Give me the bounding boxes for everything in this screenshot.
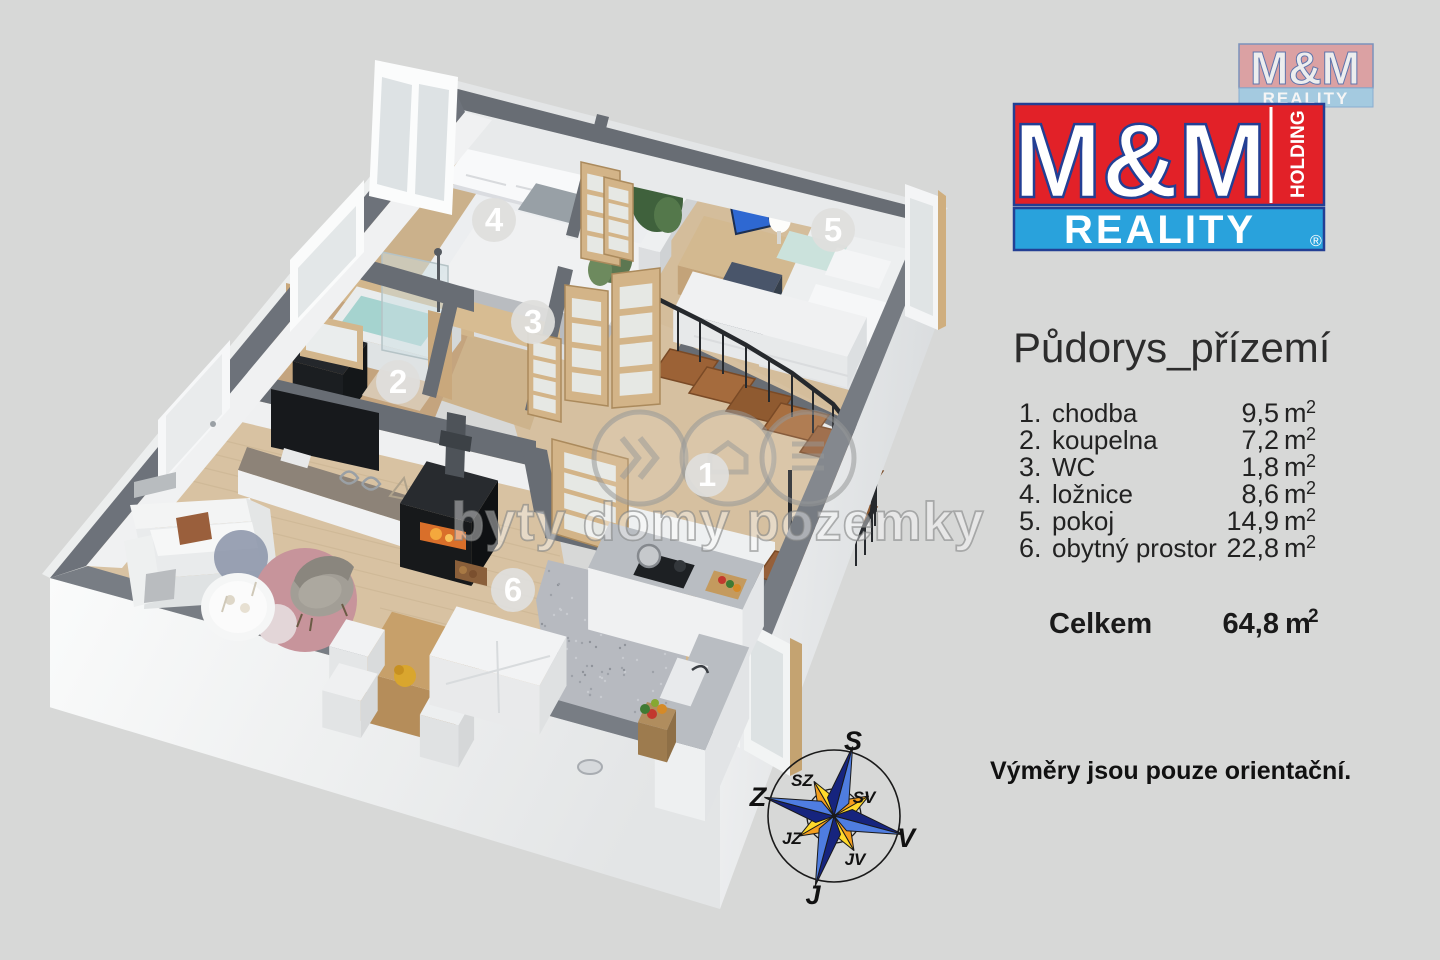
svg-text:M&M: M&M — [1013, 102, 1266, 220]
svg-text:1,8: 1,8 — [1241, 452, 1279, 482]
svg-text:2: 2 — [1306, 532, 1316, 552]
svg-text:2: 2 — [1306, 478, 1316, 498]
svg-text:2: 2 — [1308, 606, 1319, 627]
svg-text:SV: SV — [853, 788, 877, 807]
svg-text:m: m — [1284, 425, 1307, 455]
svg-text:5: 5 — [824, 211, 842, 248]
svg-text:pokoj: pokoj — [1052, 506, 1114, 536]
svg-text:2.: 2. — [1019, 425, 1042, 455]
svg-text:Výměry jsou pouze orientační.: Výměry jsou pouze orientační. — [990, 757, 1351, 785]
svg-text:Půdorys_přízemí: Půdorys_přízemí — [1013, 324, 1331, 371]
svg-text:HOLDING: HOLDING — [1288, 110, 1309, 198]
svg-text:V: V — [897, 823, 917, 853]
svg-text:chodba: chodba — [1052, 398, 1138, 428]
svg-text:2: 2 — [1306, 451, 1316, 471]
svg-text:J: J — [805, 880, 821, 910]
svg-text:3.: 3. — [1019, 452, 1042, 482]
svg-text:4.: 4. — [1019, 479, 1042, 509]
svg-text:22,8: 22,8 — [1226, 533, 1279, 563]
svg-text:6: 6 — [504, 571, 522, 608]
svg-text:64,8: 64,8 — [1223, 608, 1279, 640]
svg-text:1: 1 — [698, 456, 716, 493]
svg-text:14,9: 14,9 — [1226, 506, 1279, 536]
svg-text:REALITY: REALITY — [1064, 208, 1256, 252]
svg-text:Celkem: Celkem — [1049, 608, 1152, 640]
svg-text:obytný prostor: obytný prostor — [1052, 533, 1217, 563]
svg-text:koupelna: koupelna — [1052, 425, 1158, 455]
svg-text:3: 3 — [524, 303, 542, 340]
svg-text:4: 4 — [485, 201, 504, 238]
svg-text:5.: 5. — [1019, 506, 1042, 536]
svg-text:2: 2 — [1306, 505, 1316, 525]
svg-text:JZ: JZ — [782, 829, 802, 848]
svg-text:ložnice: ložnice — [1052, 479, 1133, 509]
svg-text:1.: 1. — [1019, 398, 1042, 428]
svg-text:JV: JV — [845, 850, 867, 869]
svg-text:S: S — [844, 726, 862, 756]
svg-text:2: 2 — [1306, 424, 1316, 444]
svg-text:m: m — [1284, 452, 1307, 482]
svg-text:M&M: M&M — [1250, 42, 1360, 94]
svg-text:m: m — [1284, 506, 1307, 536]
svg-text:2: 2 — [389, 363, 407, 400]
svg-text:m: m — [1284, 398, 1307, 428]
svg-text:byty domy pozemky: byty domy pozemky — [451, 492, 984, 552]
svg-text:®: ® — [1310, 233, 1322, 250]
svg-text:m: m — [1284, 479, 1307, 509]
svg-text:2: 2 — [1306, 397, 1316, 417]
svg-text:SZ: SZ — [791, 771, 813, 790]
svg-text:8,6: 8,6 — [1241, 479, 1279, 509]
svg-text:6.: 6. — [1019, 533, 1042, 563]
svg-text:9,5: 9,5 — [1241, 398, 1279, 428]
svg-text:m: m — [1285, 608, 1311, 640]
svg-text:m: m — [1284, 533, 1307, 563]
svg-text:Z: Z — [749, 782, 768, 812]
svg-text:7,2: 7,2 — [1241, 425, 1279, 455]
svg-text:WC: WC — [1052, 452, 1095, 482]
